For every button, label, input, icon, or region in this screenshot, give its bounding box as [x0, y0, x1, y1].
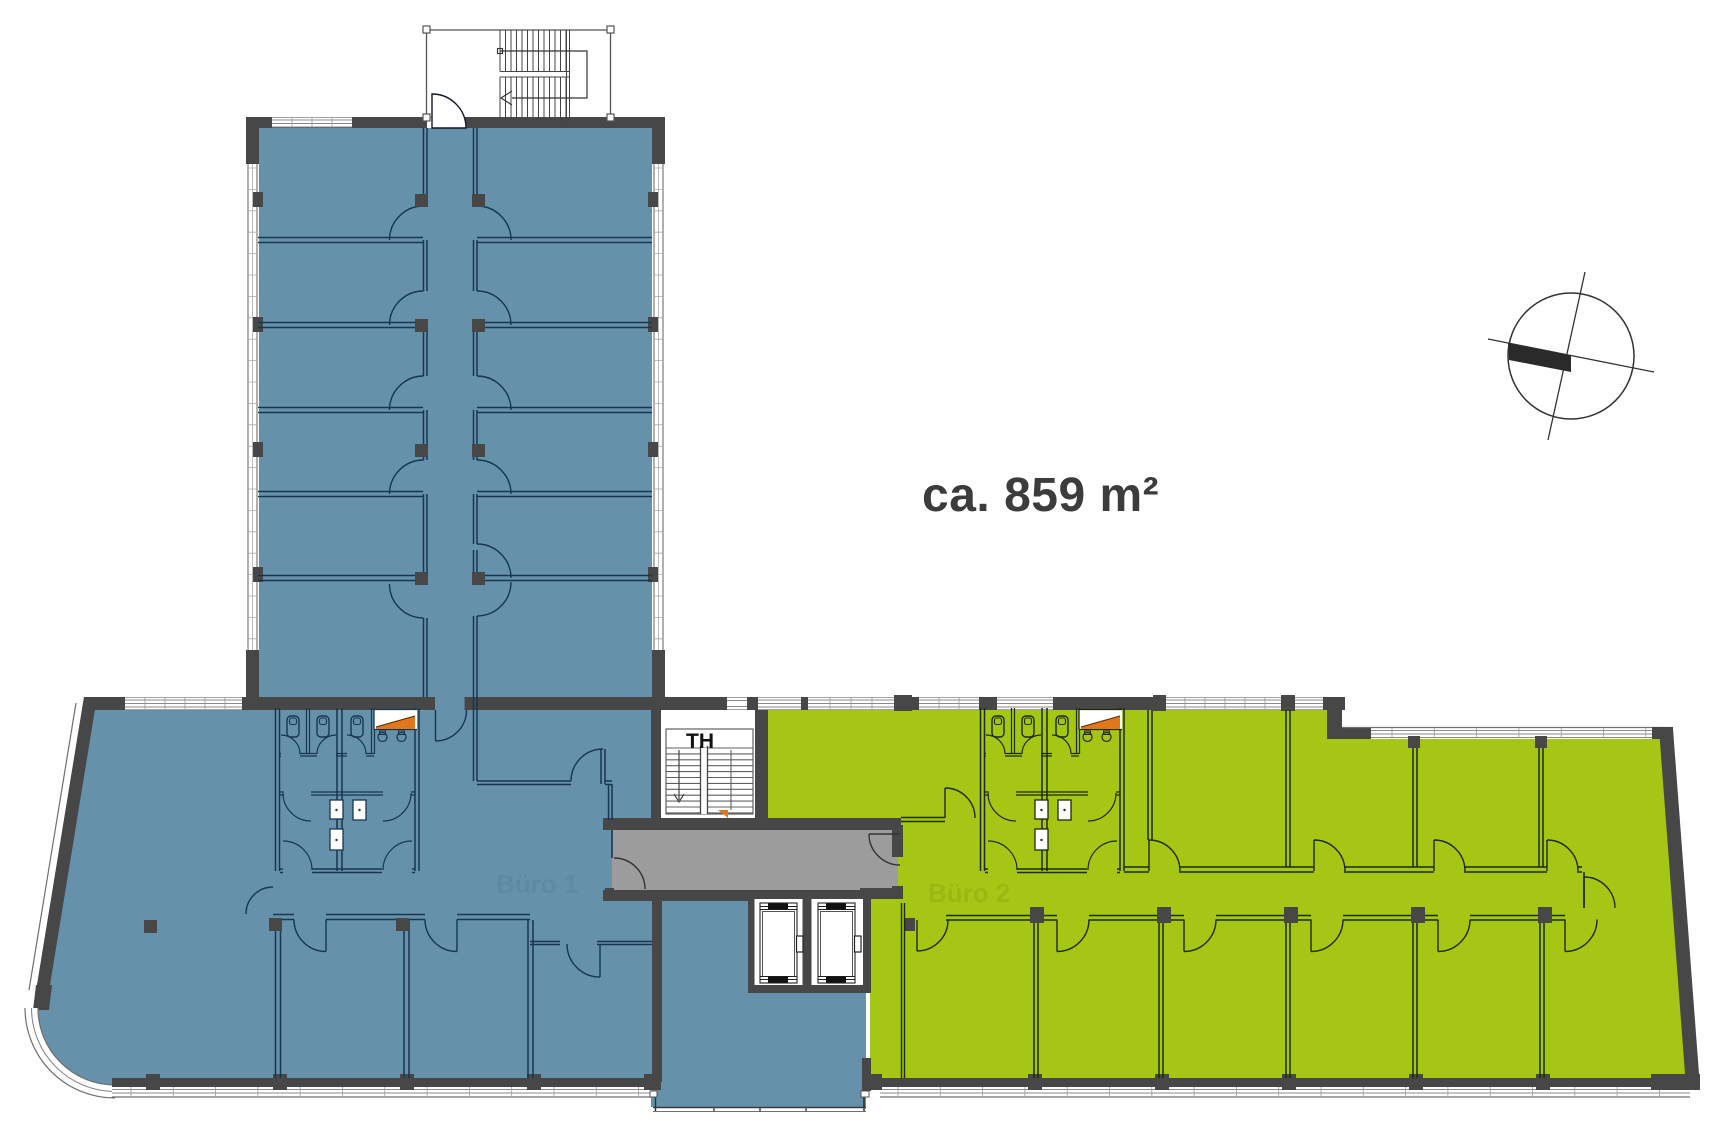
- svg-text:Büro 1: Büro 1: [496, 869, 578, 899]
- svg-text:TH: TH: [686, 730, 714, 753]
- svg-text:Büro 2: Büro 2: [928, 878, 1010, 908]
- svg-text:ca. 859 m²: ca. 859 m²: [922, 469, 1159, 522]
